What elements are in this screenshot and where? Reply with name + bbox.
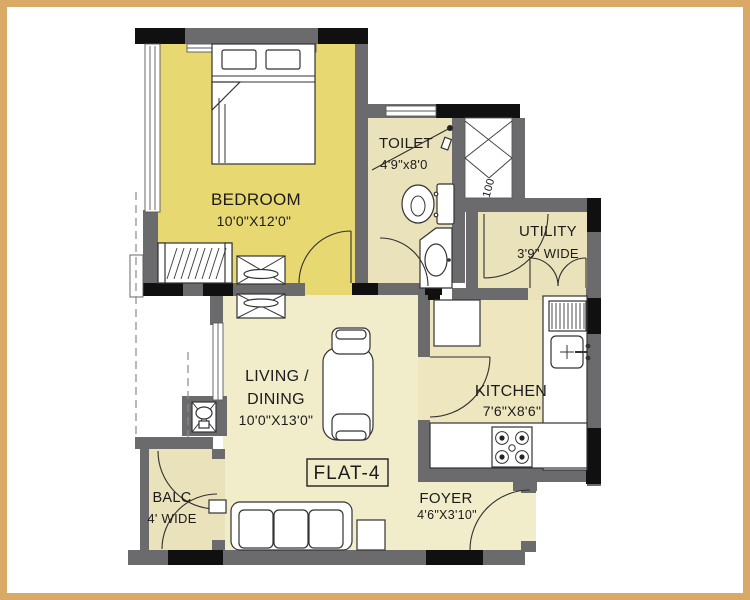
foyer-dims: 4'6"X3'10"	[417, 508, 477, 522]
dining-chair	[332, 414, 370, 440]
dining-chair	[332, 328, 370, 354]
living-label-line1: LIVING /	[245, 368, 309, 385]
flat-label: FLAT-4	[314, 463, 381, 484]
foyer-label: FOYER	[419, 490, 472, 507]
wash-basin-niche	[192, 402, 216, 432]
utility-dims: 3'9" WIDE	[517, 246, 579, 261]
refrigerator	[434, 300, 480, 346]
kitchen-label: KITCHEN	[475, 383, 547, 400]
bedroom-left-window	[145, 44, 160, 212]
tv-unit	[237, 256, 285, 284]
bed	[212, 44, 315, 164]
drainboard	[549, 301, 586, 331]
balcony-label: BALC	[152, 490, 191, 506]
flat-title: FLAT-4	[307, 459, 388, 486]
wash-basin	[420, 228, 452, 288]
balcony-dims: 4' WIDE	[147, 511, 196, 526]
bedroom-dims: 10'0"X12'0"	[217, 213, 292, 229]
duct-shaft: 100	[465, 118, 512, 199]
bedroom-label: BEDROOM	[211, 190, 301, 209]
living-label-line2: DINING	[247, 391, 305, 408]
sofa	[231, 502, 352, 550]
hob	[492, 427, 532, 467]
toilet-dims: 4'9"x8'0	[380, 157, 427, 172]
utility-label: UTILITY	[519, 223, 577, 240]
kitchen-dims: 7'6"X8'6"	[483, 403, 541, 419]
floor-plan-drawing: 100	[0, 0, 750, 600]
wardrobe	[158, 243, 232, 283]
living-dims: 10'0"X13'0"	[239, 412, 314, 428]
toilet-label: TOILET	[379, 135, 433, 152]
wc	[402, 184, 454, 224]
floor-plan: 100	[0, 0, 750, 600]
side-table	[357, 520, 385, 550]
tv-unit	[237, 294, 285, 318]
